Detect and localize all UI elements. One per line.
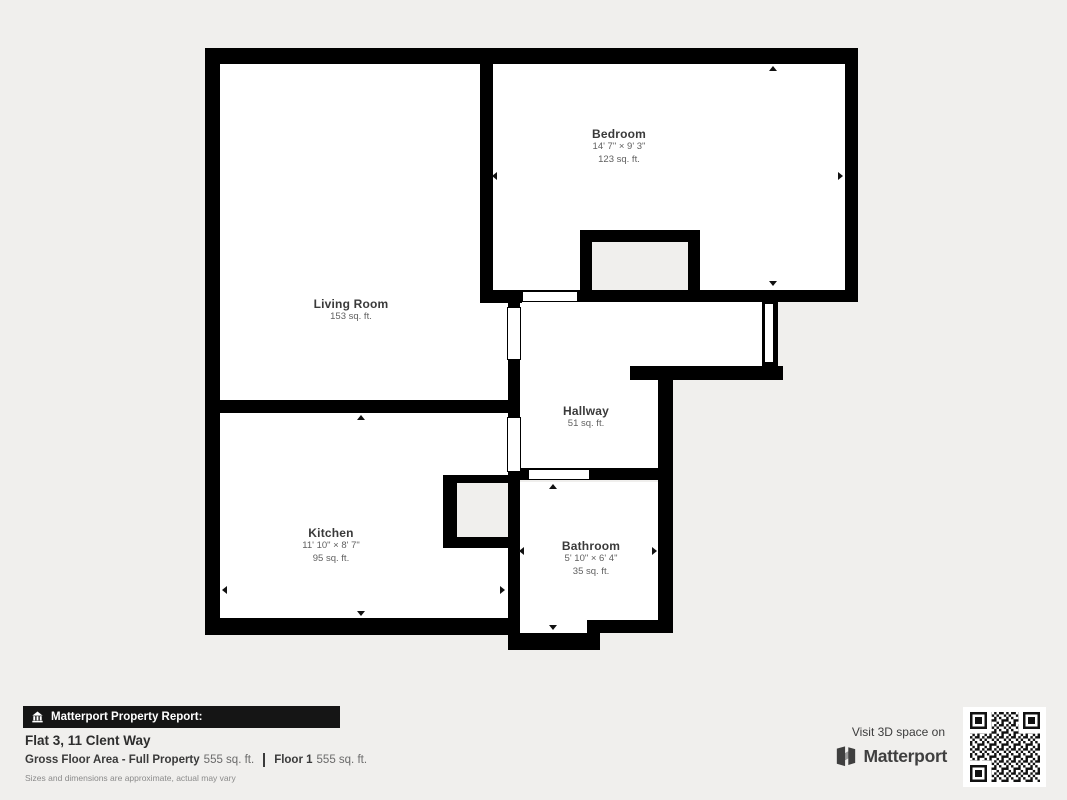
floor-plan-report-page: Living Room 153 sq. ft. Bedroom 14' 7" ×… (0, 0, 1067, 800)
room-area: 123 sq. ft. (592, 154, 646, 167)
room-area: 35 sq. ft. (562, 566, 620, 579)
room-area: 51 sq. ft. (563, 418, 609, 431)
property-address: Flat 3, 11 Clent Way (25, 733, 151, 748)
room-floor-living-room (220, 64, 485, 400)
room-area: 95 sq. ft. (302, 553, 359, 566)
dimension-arrow-up-icon (357, 415, 365, 420)
room-name: Bedroom (592, 127, 646, 141)
dimension-arrow-right-icon (500, 586, 505, 594)
wall-bathroom-right (658, 378, 673, 620)
room-name: Living Room (314, 297, 389, 311)
dimension-arrow-down-icon (357, 611, 365, 616)
divider (263, 753, 265, 767)
wall-bathroom-bottom-step (587, 620, 673, 633)
gross-floor-area-value: 555 sq. ft. (204, 754, 255, 766)
room-name: Hallway (563, 404, 609, 418)
wall-top (205, 48, 858, 64)
dimension-arrow-up-icon (769, 66, 777, 71)
door-opening-living-hallway (507, 307, 521, 360)
bedroom-closet-void (592, 242, 688, 290)
room-label-hallway: Hallway 51 sq. ft. (563, 404, 609, 431)
floor-plan: Living Room 153 sq. ft. Bedroom 14' 7" ×… (205, 48, 858, 650)
dimension-arrow-down-icon (549, 625, 557, 630)
matterport-logo: Matterport (835, 745, 947, 767)
floor-label: Floor 1 (274, 754, 312, 766)
room-name: Kitchen (302, 526, 359, 540)
room-label-bedroom: Bedroom 14' 7" × 9' 3" 123 sq. ft. (592, 127, 646, 166)
room-label-bathroom: Bathroom 5' 10" × 6' 4" 35 sq. ft. (562, 539, 620, 578)
dimension-arrow-right-icon (652, 547, 657, 555)
gross-floor-area-label: Gross Floor Area - Full Property (25, 754, 200, 766)
floor-area-summary: Gross Floor Area - Full Property 555 sq.… (25, 753, 367, 767)
room-name: Bathroom (562, 539, 620, 553)
dimension-arrow-left-icon (519, 547, 524, 555)
report-badge-label: Matterport Property Report: (51, 711, 202, 723)
room-dimensions: 14' 7" × 9' 3" (592, 141, 646, 154)
building-icon (31, 711, 44, 723)
dimension-arrow-up-icon (549, 484, 557, 489)
visit-3d-space-cta: Visit 3D space on Matterport (835, 725, 947, 767)
window-opening (765, 304, 773, 362)
wall-hallway-right-horizontal (630, 366, 783, 380)
wall-bedroom-right (845, 48, 858, 302)
matterport-wordmark: Matterport (863, 746, 947, 767)
room-label-kitchen: Kitchen 11' 10" × 8' 7" 95 sq. ft. (302, 526, 359, 565)
door-opening-bedroom (522, 291, 578, 302)
report-badge-bar: Matterport Property Report: (23, 706, 340, 728)
floor-value: 555 sq. ft. (317, 754, 368, 766)
wall-living-bedroom-divider (480, 64, 493, 302)
door-opening-kitchen-hallway (507, 417, 521, 472)
qr-code (963, 707, 1046, 787)
disclaimer-text: Sizes and dimensions are approximate, ac… (25, 773, 236, 783)
wall-bathroom-bottom-left (508, 633, 600, 650)
dimension-arrow-left-icon (222, 586, 227, 594)
dimension-arrow-left-icon (492, 172, 497, 180)
room-area: 153 sq. ft. (314, 311, 389, 324)
room-floor-hallway (518, 302, 663, 468)
dimension-arrow-right-icon (838, 172, 843, 180)
wall-left (205, 48, 220, 634)
dimension-arrow-down-icon (769, 281, 777, 286)
room-dimensions: 11' 10" × 8' 7" (302, 540, 359, 553)
kitchen-closet-void (457, 483, 508, 537)
wall-kitchen-bottom (205, 618, 520, 635)
wall-living-kitchen-divider (205, 400, 520, 413)
matterport-logo-icon (835, 745, 857, 767)
room-dimensions: 5' 10" × 6' 4" (562, 553, 620, 566)
room-label-living-room: Living Room 153 sq. ft. (314, 297, 389, 324)
door-opening-bathroom (528, 469, 590, 480)
visit-text: Visit 3D space on (835, 725, 945, 739)
